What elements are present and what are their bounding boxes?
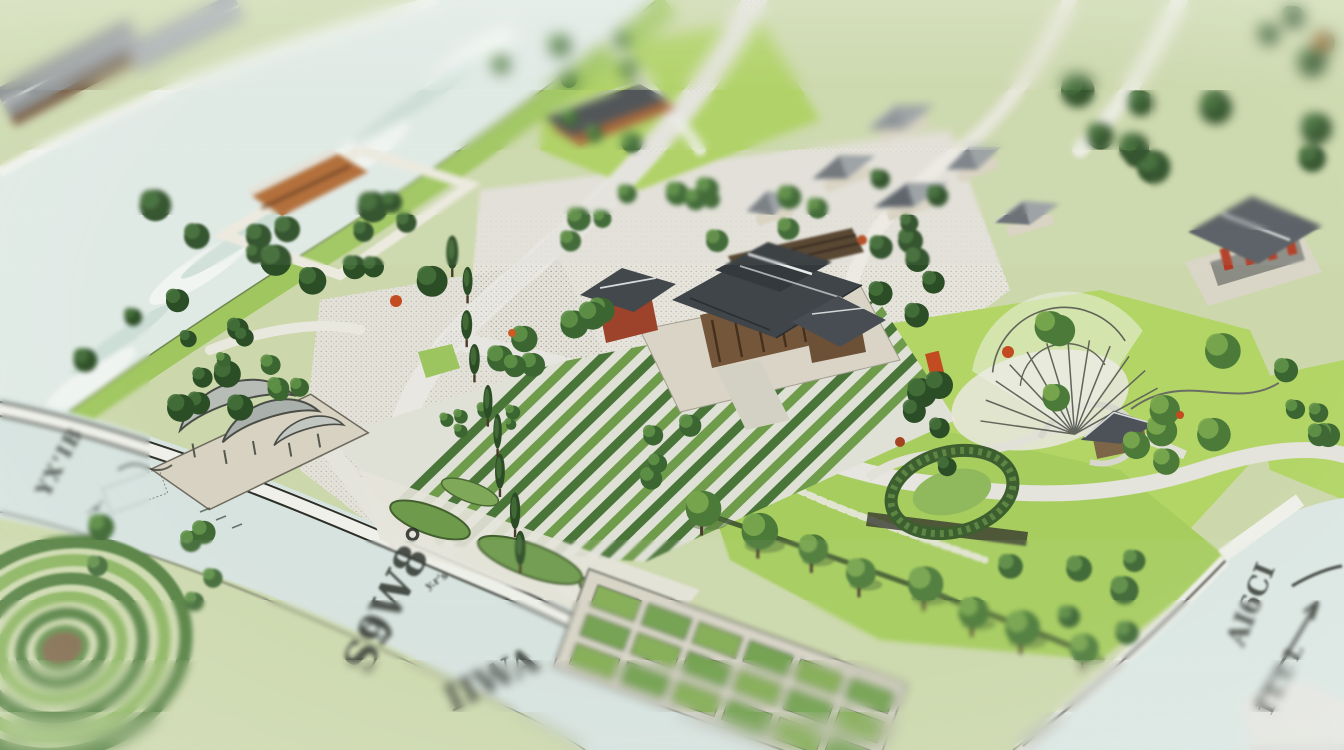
tree-highlight [909, 567, 931, 589]
tree-highlight [192, 520, 207, 535]
tree-highlight [696, 177, 710, 191]
tree-highlight [903, 400, 917, 414]
tree-highlight [846, 558, 865, 577]
tree-highlight [926, 371, 943, 388]
poplar-highlight [496, 458, 501, 479]
tree-highlight [1282, 6, 1296, 20]
tree-highlight [396, 212, 408, 224]
tree-highlight [124, 308, 135, 319]
poplar-highlight [494, 418, 499, 439]
poplar-highlight [516, 535, 522, 556]
tree-highlight [706, 229, 720, 243]
tree-highlight [619, 59, 630, 70]
tree-highlight [687, 491, 709, 513]
tree-highlight [1066, 555, 1082, 571]
site-plan-scene: YX'IB S9W8° IIWA AI6CI 1LLL y.r's ~w'' [0, 0, 1344, 750]
tree-highlight [1206, 333, 1228, 355]
tree-highlight [439, 412, 447, 420]
tree-highlight [363, 256, 376, 269]
tree-highlight [505, 418, 511, 424]
poplar-highlight [448, 239, 455, 259]
tree-highlight [593, 209, 604, 220]
poplar-highlight [484, 389, 489, 409]
tree-highlight [261, 245, 280, 264]
tree-highlight [560, 70, 570, 80]
tree-highlight [1299, 145, 1316, 162]
tree-highlight [1119, 133, 1138, 152]
tree-highlight [613, 31, 623, 41]
tree-highlight [453, 409, 461, 417]
tree-highlight [1123, 431, 1140, 448]
tree-highlight [381, 192, 394, 205]
tree-highlight [1115, 621, 1129, 635]
tilt-shift-map-photo: YX'IB S9W8° IIWA AI6CI 1LLL y.r's ~w'' [0, 0, 1344, 750]
tree-highlight [487, 345, 503, 361]
tree-highlight [166, 289, 180, 303]
red-accent [1314, 34, 1330, 50]
tree-highlight [561, 310, 578, 327]
tree-highlight [617, 184, 629, 196]
tree-highlight [274, 216, 290, 232]
tree-highlight [453, 424, 461, 432]
red-accent [857, 235, 867, 245]
tree-highlight [1150, 395, 1169, 414]
tree-highlight [929, 417, 942, 430]
tree-highlight [666, 182, 680, 196]
tree-highlight [185, 592, 197, 604]
tree-highlight [908, 378, 926, 396]
tree-highlight [959, 597, 978, 616]
tree-highlight [167, 394, 184, 411]
tree-highlight [685, 189, 698, 202]
tree-highlight [922, 271, 936, 285]
tree-highlight [1062, 74, 1083, 95]
tree-highlight [504, 355, 518, 369]
tree-highlight [869, 235, 883, 249]
tree-highlight [1035, 311, 1055, 331]
tree-highlight [549, 34, 563, 48]
tree-highlight [586, 125, 596, 135]
tree-highlight [868, 281, 883, 296]
tree-highlight [1285, 399, 1297, 411]
tree-highlight [1006, 611, 1028, 633]
tree-highlight [180, 530, 193, 543]
tree-highlight [1200, 92, 1220, 112]
tree-highlight [998, 554, 1013, 569]
poplar-highlight [463, 313, 469, 330]
tree-highlight [1070, 634, 1088, 652]
tree-highlight [643, 425, 655, 437]
tree-highlight [1302, 113, 1321, 132]
tree-highlight [1111, 576, 1129, 594]
tree-highlight [900, 213, 911, 224]
tree-highlight [505, 404, 514, 413]
tree-highlight [778, 185, 793, 200]
tree-highlight [87, 555, 100, 568]
tree-highlight [870, 169, 882, 181]
tree-highlight [180, 330, 190, 340]
tree-highlight [777, 218, 790, 231]
tree-highlight [260, 354, 272, 366]
tree-highlight [799, 534, 817, 552]
tree-highlight [567, 207, 582, 222]
tree-highlight [1299, 47, 1317, 65]
tree-highlight [290, 378, 301, 389]
tree-highlight [246, 224, 262, 240]
tree-highlight [203, 568, 215, 580]
tree-highlight [358, 192, 377, 211]
tree-highlight [1043, 384, 1060, 401]
tree-highlight [742, 513, 765, 536]
red-accent [895, 437, 905, 447]
tree-highlight [192, 367, 204, 379]
tree-highlight [579, 302, 596, 319]
tree-highlight [1274, 358, 1289, 373]
tree-highlight [905, 247, 920, 262]
poplar-highlight [464, 270, 469, 287]
tree-highlight [140, 190, 160, 210]
tree-highlight [1153, 448, 1169, 464]
red-accent [390, 295, 402, 307]
tree-highlight [679, 414, 693, 428]
tree-highlight [1308, 423, 1322, 437]
tree-highlight [621, 132, 634, 145]
tree-highlight [73, 348, 88, 363]
tree-highlight [1198, 418, 1219, 439]
tree-highlight [807, 197, 820, 210]
tree-highlight [1087, 123, 1103, 139]
tree-highlight [216, 352, 225, 361]
tree-highlight [1309, 403, 1321, 415]
tree-highlight [560, 108, 571, 119]
tree-highlight [560, 230, 573, 243]
tree-highlight [648, 454, 659, 465]
tree-highlight [927, 185, 940, 198]
tree-highlight [235, 328, 246, 339]
red-accent [508, 329, 516, 337]
tree-highlight [343, 255, 358, 270]
poplar-highlight [471, 347, 477, 365]
tree-highlight [1258, 23, 1271, 36]
tree-highlight [1058, 605, 1072, 619]
tree-highlight [417, 266, 436, 285]
tree-highlight [1128, 90, 1144, 106]
tree-highlight [299, 267, 316, 284]
tree-highlight [1123, 549, 1137, 563]
red-accent [1002, 346, 1014, 358]
red-accent [1176, 411, 1184, 419]
tree-highlight [491, 55, 502, 66]
tree-highlight [246, 244, 257, 255]
tree-highlight [271, 383, 282, 394]
tree-highlight [184, 223, 200, 239]
poplar-highlight [511, 497, 517, 519]
tree-highlight [905, 303, 920, 318]
tree-highlight [353, 221, 366, 234]
tree-highlight [227, 394, 243, 410]
tree-highlight [937, 457, 949, 469]
